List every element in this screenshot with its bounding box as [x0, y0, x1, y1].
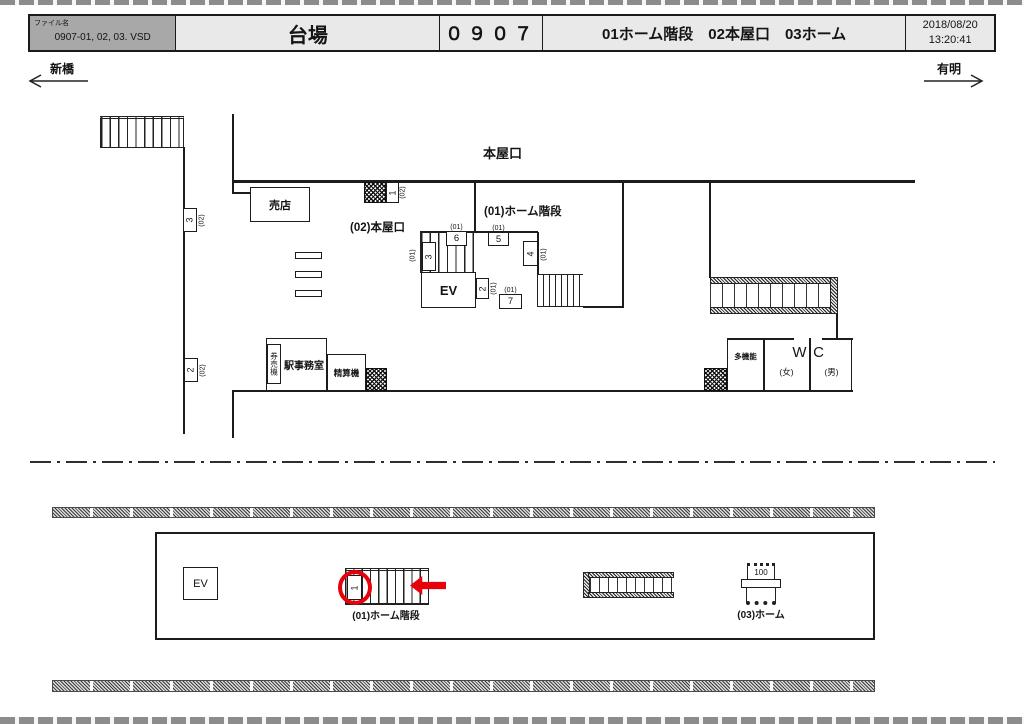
platform-stairs-label: (01)ホーム階段: [336, 608, 436, 621]
wall-segment: [822, 338, 853, 340]
platform-edge-strip-bottom: [52, 680, 875, 692]
stairs-upper-left: [100, 116, 184, 148]
pillar-hatch-3: [704, 368, 727, 391]
pillar-hatch-2: [366, 368, 387, 391]
elevator-concourse: EV: [421, 272, 476, 308]
location-names: 01ホーム階段 02本屋口 03ホーム: [543, 16, 906, 50]
highlight-circle: [338, 570, 372, 605]
file-name-value: 0907-01, 02, 03. VSD: [30, 32, 175, 43]
ad-position-4-01: 4: [523, 241, 538, 266]
station-name: 台場: [176, 16, 440, 50]
escalator-rail: [710, 277, 831, 284]
wall-jog: [232, 192, 250, 194]
vending-machine-top: 100: [747, 563, 775, 580]
fare-adjustment-machine: 精算機: [327, 354, 366, 391]
stairs-concourse-right: [537, 274, 583, 307]
page-edge-mark-bottom: [0, 717, 1024, 724]
toilet-block: 多機能 (女) W C (男): [727, 338, 852, 391]
ad-position-prefix: (02): [397, 182, 409, 203]
toilet-wc-w: W: [791, 343, 808, 362]
section-separator-line: [30, 461, 995, 463]
ad-position-prefix: (02): [197, 211, 207, 229]
wall-segment: [728, 338, 794, 340]
page-edge-mark-top: [0, 0, 1024, 5]
direction-right-arrow-icon: [922, 72, 986, 90]
wall-escalator-wc: [836, 313, 838, 340]
area-label-02: (02)本屋口: [350, 219, 420, 234]
file-name-label: ファイル名: [34, 18, 69, 28]
platform-home-label: (03)ホーム: [731, 606, 791, 620]
ad-position-prefix: (02): [198, 361, 208, 379]
ad-position-prefix: (01): [488, 224, 509, 232]
wall-segment: [763, 338, 765, 391]
ad-position-prefix: (01): [489, 281, 499, 296]
ticket-gate: [295, 290, 322, 297]
ad-position-prefix: (01): [501, 287, 520, 294]
toilet-men-label: (男): [810, 366, 853, 378]
vending-machine-icon: 100: [741, 563, 781, 608]
ad-position-6-01: 6: [446, 231, 467, 246]
ticket-gate: [295, 252, 322, 259]
ad-position-2-01: 2: [476, 278, 489, 299]
toilet-multifunction-label: 多機能: [728, 350, 763, 362]
wall-top: [232, 180, 915, 183]
vending-machine-body: [746, 587, 776, 605]
station-diagram-page: ファイル名 0907-01, 02, 03. VSD 台場 ０９０７ 01ホーム…: [0, 0, 1024, 724]
wall-divider-622: [622, 182, 624, 308]
stairs-bottom-extension: [583, 306, 624, 308]
ad-position-5-01: 5: [488, 232, 509, 246]
escalator-steps: [710, 284, 830, 307]
ad-position-prefix: (01): [539, 245, 549, 263]
pillar-hatch-1: [364, 182, 386, 203]
wall-divider-475: [474, 182, 476, 233]
ticket-gate: [295, 271, 322, 278]
station-office-label: 駅事務室: [281, 357, 327, 371]
ticket-vending-machine: 券売機: [267, 344, 281, 384]
shop-kiosk: 売店: [250, 187, 310, 222]
ad-position-3-01: 3: [422, 242, 436, 271]
direction-left-arrow-icon: [26, 72, 90, 90]
elevator-platform: EV: [183, 567, 218, 600]
header-title-block: ファイル名 0907-01, 02, 03. VSD 台場 ０９０７ 01ホーム…: [28, 14, 996, 52]
entrance-title: 本屋口: [455, 144, 550, 161]
escalator-rail: [710, 307, 831, 314]
escalator-rail: [588, 592, 674, 598]
toilet-women-label: (女): [764, 366, 809, 378]
ad-position-3-02: 3: [183, 208, 197, 232]
ad-position-prefix: (01): [446, 223, 467, 231]
ad-position-prefix: (01): [408, 246, 418, 264]
print-time: 13:20:41: [929, 33, 972, 48]
area-label-01: (01)ホーム階段: [484, 203, 584, 218]
escalator-platform: [583, 572, 674, 598]
wall-left: [183, 147, 185, 434]
escalator-end-cap: [830, 277, 838, 314]
ad-position-2-02: 2: [184, 358, 198, 382]
wall-bottom-drop: [232, 390, 234, 438]
print-date: 2018/08/20: [923, 18, 978, 33]
wall-divider-710: [709, 182, 711, 278]
escalator-concourse: [710, 277, 838, 314]
location-code: ０９０７: [440, 16, 543, 50]
platform-edge-strip-top: [52, 507, 875, 518]
toilet-wc-c: C: [811, 343, 826, 362]
ad-position-7-01: 7: [499, 294, 522, 309]
escalator-steps: [590, 578, 674, 592]
